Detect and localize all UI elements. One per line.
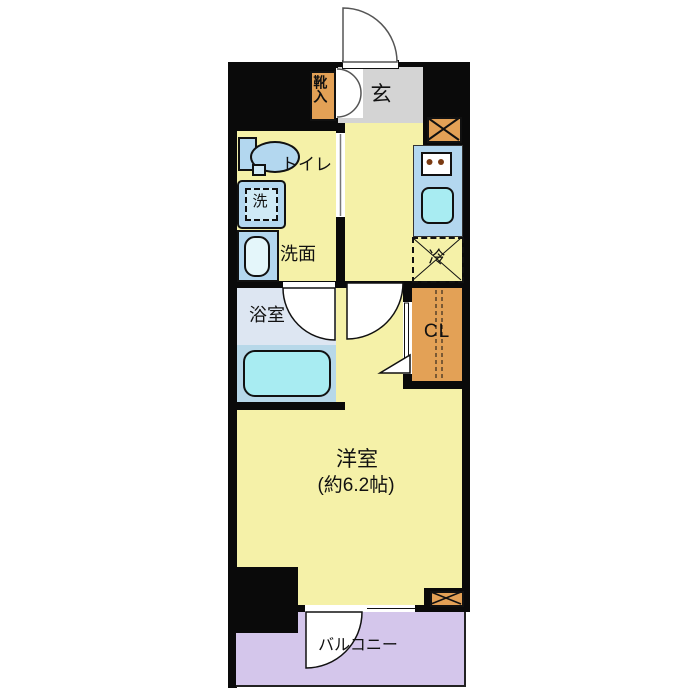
washing-machine-label: 洗 xyxy=(245,194,275,211)
entrance-label: 玄 xyxy=(362,83,400,106)
refrigerator-label: 冷 xyxy=(422,249,452,268)
shoe-cabinet-door-arc-top xyxy=(337,69,361,93)
room-door-swing xyxy=(347,283,403,339)
symbols-overlay xyxy=(0,0,700,700)
balcony-label: バルコニー xyxy=(288,637,428,655)
toilet-label: トイレ xyxy=(281,156,332,175)
closet-folding-door xyxy=(380,355,410,373)
stove-burner-1 xyxy=(427,159,433,165)
bathroom-door-swing xyxy=(283,288,335,340)
bathroom-label: 浴室 xyxy=(249,306,285,326)
shoe-cabinet-door-arc-bottom xyxy=(337,93,361,117)
closet-label: CL xyxy=(417,322,457,343)
washroom-label: 洗面 xyxy=(280,245,316,265)
main-room-size-label: (約6.2帖) xyxy=(286,476,426,497)
stove-burner-2 xyxy=(438,159,444,165)
floorplan-canvas: 玄 靴入 トイレ 洗 洗面 浴室 冷 CL 洋室 (約6.2帖) バルコニー xyxy=(0,0,700,700)
main-room-label: 洋室 xyxy=(307,448,407,471)
shoe-cabinet-label: 靴入 xyxy=(312,75,327,103)
entrance-door-swing xyxy=(343,8,397,62)
